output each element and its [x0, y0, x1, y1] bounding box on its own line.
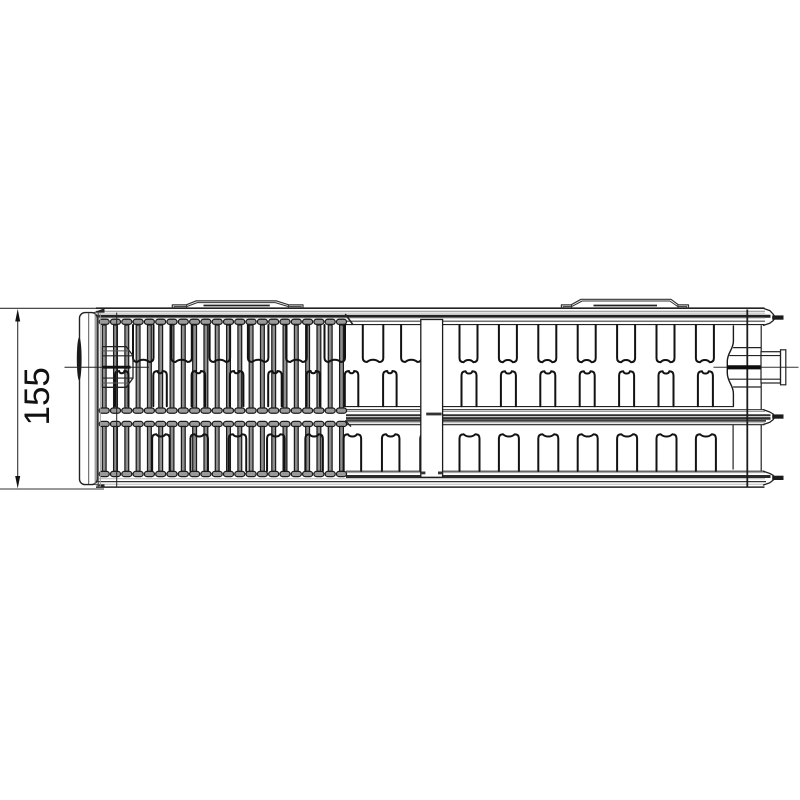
svg-text:155: 155 [18, 367, 57, 425]
